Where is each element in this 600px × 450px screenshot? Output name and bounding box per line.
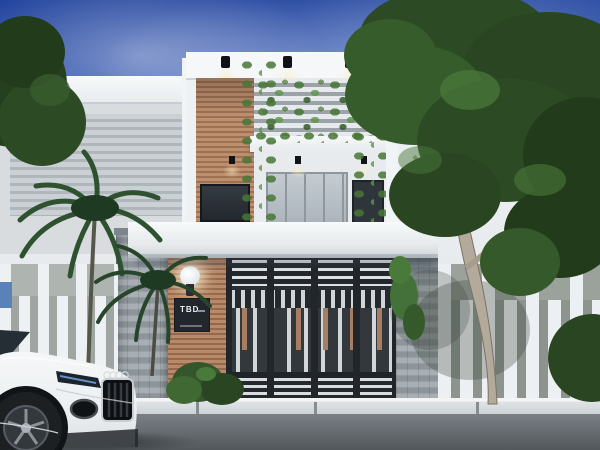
fence-tall-slats-left [0,264,118,300]
downlight-icon [295,156,301,164]
wall-lamp [180,266,200,286]
wall-lamp-bracket [186,284,194,296]
gate-panel-divider [353,246,360,412]
fence-right [438,300,600,402]
downlight-icon [221,56,230,68]
architectural-render: TBD [0,0,600,450]
plaque-subtext-line [197,310,205,312]
car-fog-lamp [71,400,97,418]
curb-joint [314,402,317,414]
downlight-icon [283,56,292,68]
curb-joint [476,402,479,414]
plaque-subtext-line [180,325,202,327]
left-wing-parapet [0,76,198,104]
tower-right-edge [386,52,398,230]
gate-frame-left [226,246,232,412]
curb-joint [196,402,199,414]
car-windshield [0,330,30,355]
entry-canopy [128,222,438,258]
canopy-shadow [136,259,432,266]
white-sports-car [0,325,170,450]
fence-tall-slats-right [438,264,600,304]
car-grille [102,379,133,421]
left-wing-louver-window [10,114,186,216]
house-name-plaque: TBD [174,298,210,332]
downlight-glow [289,164,307,178]
gate-panel-divider [267,246,274,412]
vine-column-left [238,58,278,230]
downlight-icon [229,156,235,164]
sky-gap-through-fence [0,282,12,308]
gate-panel-divider [311,246,318,412]
